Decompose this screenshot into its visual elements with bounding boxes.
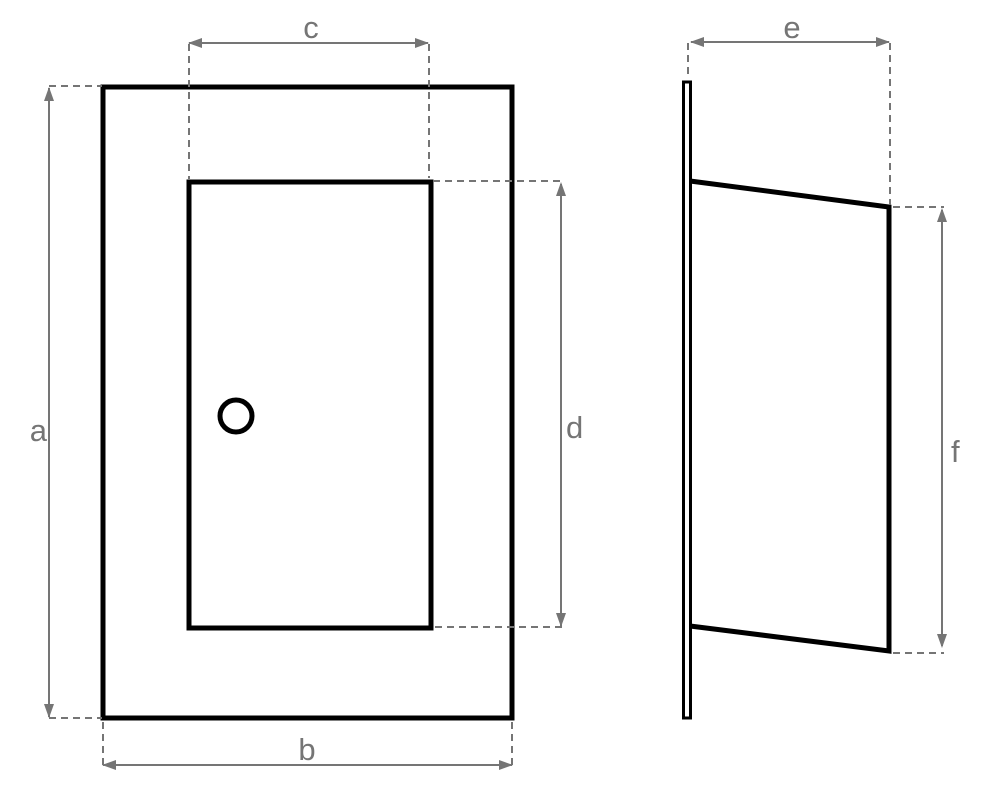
side-frame-strip <box>684 82 691 718</box>
dimension-a-arrowhead-bottom <box>44 704 54 718</box>
dimension-b: b <box>102 722 513 770</box>
dimension-c: c <box>188 10 429 179</box>
dimension-f-arrowhead-top <box>937 208 947 222</box>
side-view <box>684 82 890 718</box>
dimension-c-label: c <box>303 10 319 45</box>
dimension-f-arrowhead-bottom <box>937 634 947 648</box>
drawing-canvas: a b c d e <box>0 0 1000 800</box>
dimension-b-label: b <box>298 732 315 767</box>
dimension-e: e <box>688 10 890 205</box>
dimension-f-label: f <box>951 434 960 469</box>
dimension-d-arrowhead-top <box>556 182 566 196</box>
dimension-d-label: d <box>566 410 583 445</box>
dimension-e-arrowhead-left <box>690 37 704 47</box>
dimension-a: a <box>30 86 102 718</box>
dimension-e-label: e <box>783 10 800 45</box>
dimension-d-arrowhead-bottom <box>556 613 566 627</box>
technical-drawing: a b c d e <box>0 0 1000 800</box>
dimension-c-arrowhead-left <box>188 38 202 48</box>
door-knob-hole <box>220 400 252 432</box>
dimension-a-arrowhead-top <box>44 87 54 101</box>
dimension-a-label: a <box>30 413 48 448</box>
dimension-c-arrowhead-right <box>415 38 429 48</box>
dimension-f: f <box>893 207 960 653</box>
dimension-d: d <box>433 181 583 627</box>
side-door-profile <box>690 181 889 651</box>
dimension-e-arrowhead-right <box>876 37 890 47</box>
dimension-b-arrowhead-right <box>499 760 513 770</box>
dimension-b-arrowhead-left <box>102 760 116 770</box>
